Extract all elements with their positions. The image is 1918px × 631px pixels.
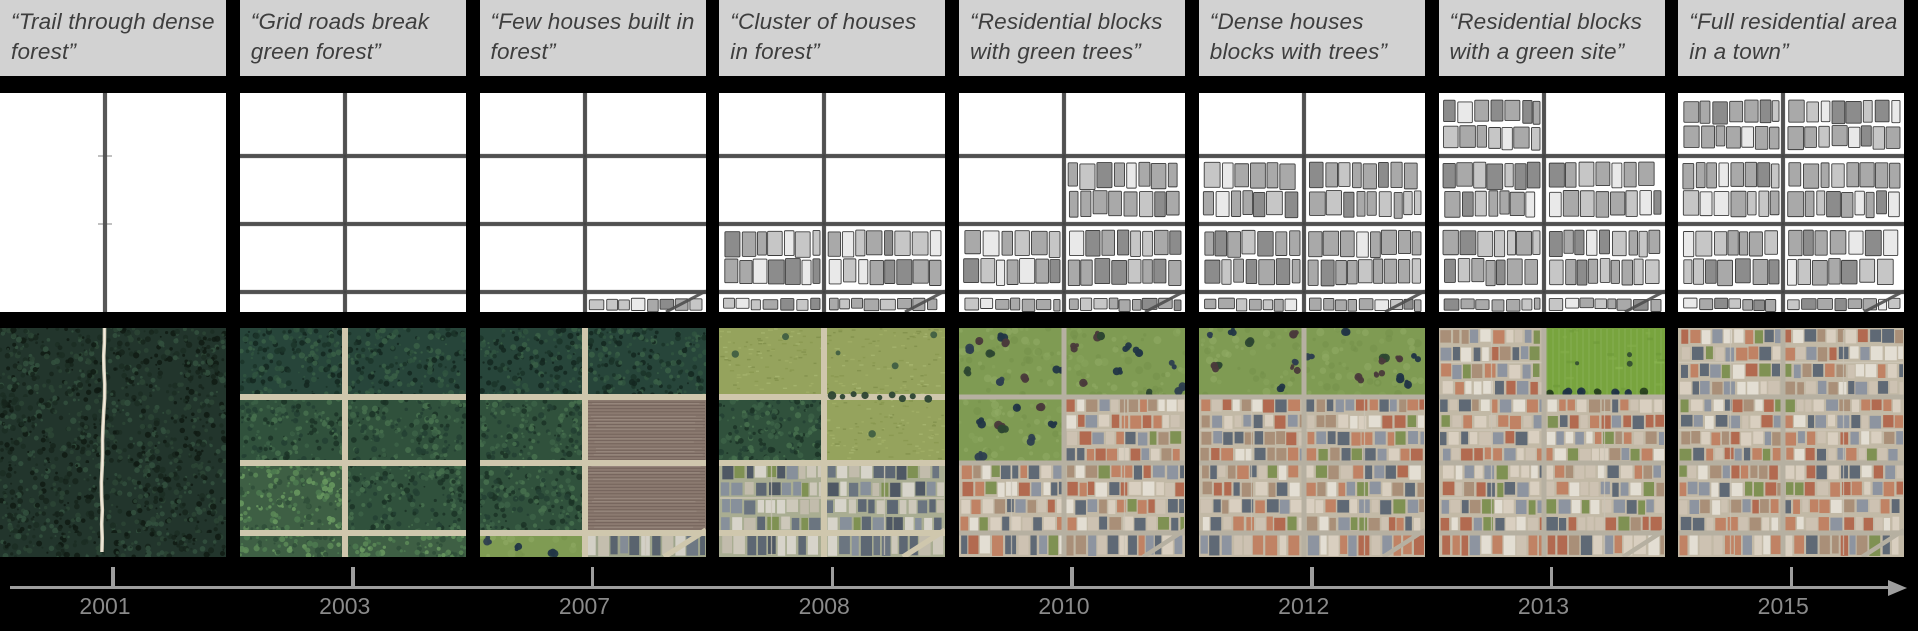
panel-caption: “Trail through dense forest”: [0, 0, 226, 76]
map-sketch-tile: [959, 93, 1185, 312]
timeline-tick: [351, 567, 355, 586]
panel-caption-text: “Dense houses blocks with trees”: [1210, 9, 1387, 64]
satellite-image-tile: [480, 328, 706, 557]
land-development-timeline-figure: “Trail through dense forest” “Grid roads…: [0, 0, 1918, 631]
timeline-year-label: 2007: [525, 593, 645, 620]
timeline-year-label: 2003: [285, 593, 405, 620]
timeline-panel-2008: “Cluster of houses in forest”: [719, 0, 945, 557]
panel-caption: “Few houses built in forest”: [480, 0, 706, 76]
panel-caption-text: “Full residential area in a town”: [1689, 9, 1897, 64]
timeline-year-label: 2010: [1004, 593, 1124, 620]
panel-caption-text: “Residential blocks with a green site”: [1450, 9, 1643, 64]
map-sketch-tile: [1678, 93, 1904, 312]
map-sketch-tile: [1199, 93, 1425, 312]
map-sketch-tile: [0, 93, 226, 312]
satellite-image-tile: [1678, 328, 1904, 557]
satellite-image-tile: [959, 328, 1185, 557]
timeline-arrow-icon: [1888, 580, 1907, 596]
timeline-year-label: 2008: [764, 593, 884, 620]
timeline-tick: [111, 567, 115, 586]
panel-caption-text: “Cluster of houses in forest”: [730, 9, 916, 64]
map-sketch-tile: [1439, 93, 1665, 312]
satellite-image-tile: [1199, 328, 1425, 557]
panel-caption: “Cluster of houses in forest”: [719, 0, 945, 76]
timeline-year-label: 2013: [1484, 593, 1604, 620]
panel-caption: “Grid roads break green forest”: [240, 0, 466, 76]
map-sketch-tile: [719, 93, 945, 312]
timeline-panel-2003: “Grid roads break green forest”: [240, 0, 466, 557]
panel-caption: “Residential blocks with green trees”: [959, 0, 1185, 76]
panel-caption-text: “Trail through dense forest”: [11, 9, 215, 64]
satellite-image-tile: [0, 328, 226, 557]
map-sketch-tile: [240, 93, 466, 312]
map-sketch-tile: [480, 93, 706, 312]
timeline-panel-2001: “Trail through dense forest”: [0, 0, 226, 557]
panel-caption: “Full residential area in a town”: [1678, 0, 1904, 76]
panel-grid: “Trail through dense forest” “Grid roads…: [0, 0, 1904, 557]
timeline-year-label: 2001: [45, 593, 165, 620]
timeline-panel-2015: “Full residential area in a town”: [1678, 0, 1904, 557]
satellite-image-tile: [719, 328, 945, 557]
timeline-tick: [1070, 567, 1074, 586]
timeline-tick: [1790, 567, 1794, 586]
panel-caption-text: “Residential blocks with green trees”: [970, 9, 1163, 64]
panel-caption: “Residential blocks with a green site”: [1439, 0, 1665, 76]
timeline-tick: [1310, 567, 1314, 586]
timeline-year-label: 2015: [1723, 593, 1843, 620]
satellite-image-tile: [240, 328, 466, 557]
panel-caption: “Dense houses blocks with trees”: [1199, 0, 1425, 76]
timeline-tick: [1550, 567, 1554, 586]
satellite-image-tile: [1439, 328, 1665, 557]
timeline-panel-2007: “Few houses built in forest”: [480, 0, 706, 557]
timeline-panel-2012: “Dense houses blocks with trees”: [1199, 0, 1425, 557]
panel-caption-text: “Grid roads break green forest”: [251, 9, 429, 64]
timeline-year-label: 2012: [1244, 593, 1364, 620]
timeline-tick: [831, 567, 835, 586]
panel-caption-text: “Few houses built in forest”: [491, 9, 695, 64]
timeline-line: [10, 586, 1890, 589]
timeline-tick: [591, 567, 595, 586]
timeline-panel-2013: “Residential blocks with a green site”: [1439, 0, 1665, 557]
timeline-panel-2010: “Residential blocks with green trees”: [959, 0, 1185, 557]
